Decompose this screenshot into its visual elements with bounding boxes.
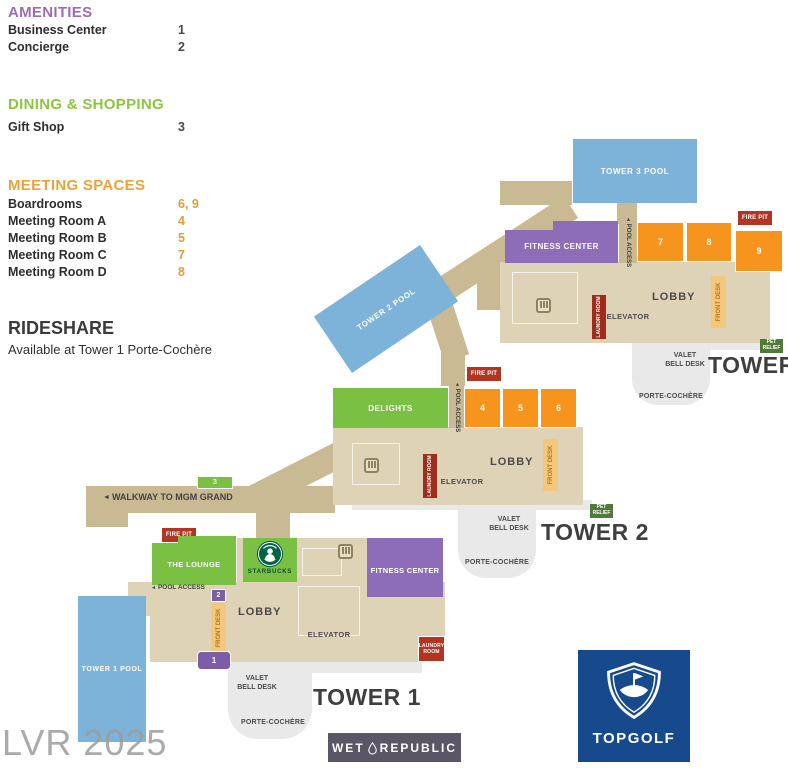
tower1-elevator-room-outline — [298, 586, 360, 636]
tower1-porte-cochere-label: PORTE-COCHÈRE — [241, 719, 303, 726]
walkway-label: ◄ WALKWAY TO MGM GRAND — [103, 492, 233, 502]
tower3-pool-access-label: ◄ POOL ACCESS — [625, 217, 631, 267]
tower3-valet-bell-desk: VALETBELL DESK — [655, 351, 715, 370]
legend-label: Business Center — [8, 23, 107, 37]
legend-item-concierge: Concierge 2 — [8, 40, 223, 54]
starbucks-label: STARBUCKS — [243, 569, 297, 575]
tower3-porte-cochere-label: PORTE-COCHÈRE — [636, 393, 706, 400]
tower1-business-center-marker: 1 — [197, 651, 231, 670]
legend-number: 4 — [178, 214, 185, 228]
tower3-meeting-room-7: 7 — [637, 222, 684, 262]
tower2-pool-access-label: ◄ POOL ACCESS — [454, 381, 460, 431]
legend-item-business-center: Business Center 1 — [8, 23, 223, 37]
wet-republic-logo: WET REPUBLIC — [328, 733, 461, 762]
legend-item-meeting-room-c: Meeting Room C 7 — [8, 248, 223, 262]
legend-item-meeting-room-b: Meeting Room B 5 — [8, 231, 223, 245]
tower3-lobby-label: LOBBY — [652, 291, 696, 303]
tower1-porte-cochere-drive — [228, 659, 312, 739]
tower2-valet-bell-desk: VALETBELL DESK — [479, 515, 539, 534]
legend-item-meeting-room-a: Meeting Room A 4 — [8, 214, 223, 228]
legend-number: 8 — [178, 265, 185, 279]
watermark: LVR 2025 — [2, 722, 167, 764]
walkway-tower3-top — [500, 181, 572, 205]
tower2-elevator-label: ELEVATOR — [438, 477, 486, 486]
tower3-pool-access-corridor: ◄ POOL ACCESS — [619, 221, 637, 263]
tower1-elevator-label: ELEVATOR — [296, 630, 362, 639]
tower1-the-lounge: THE LOUNGE — [152, 543, 236, 585]
legend-number: 2 — [178, 40, 185, 54]
legend-item-meeting-room-d: Meeting Room D 8 — [8, 265, 223, 279]
tower1-pool-access-label: ◄ POOL ACCESS — [151, 584, 205, 591]
topgolf-shield-icon — [601, 660, 667, 722]
legend-label: Boardrooms — [8, 197, 82, 211]
legend-item-boardrooms: Boardrooms 6, 9 — [8, 197, 223, 211]
walkway-tower1-stub — [256, 506, 290, 540]
tower3-fire-pit: FIRE PIT — [737, 210, 773, 226]
tower2-pool-label: TOWER 2 POOL — [355, 286, 417, 332]
amenities-heading: AMENITIES — [8, 4, 92, 21]
wet-republic-wet: WET — [332, 741, 365, 755]
legend-item-gift-shop: Gift Shop 3 — [8, 120, 223, 134]
water-drop-icon — [368, 741, 377, 755]
tower3-name: TOWER 3 — [708, 352, 788, 379]
rideshare-heading: RIDESHARE — [8, 318, 114, 339]
tower3-pool-label: TOWER 3 POOL — [601, 167, 669, 176]
tower3-meeting-room-8: 8 — [686, 222, 732, 262]
tower1-valet-bell-desk: VALETBELL DESK — [227, 674, 287, 693]
tower2-pool: TOWER 2 POOL — [314, 245, 458, 373]
gift-shop-marker: 3 — [197, 476, 233, 489]
tower2-porte-cochere-label: PORTE-COCHÈRE — [462, 559, 532, 566]
legend-label: Meeting Room D — [8, 265, 107, 279]
tower2-lobby-label: LOBBY — [490, 456, 534, 468]
tower2-name: TOWER 2 — [541, 519, 649, 546]
tower2-pet-relief: PETRELIEF — [590, 504, 613, 518]
rideshare-subtitle: Available at Tower 1 Porte-Cochère — [8, 342, 212, 357]
tower3-fitness-label: FITNESS CENTER — [505, 230, 618, 263]
left-arrow-icon: ◄ — [151, 585, 156, 591]
tower2-meeting-room-4: 4 — [464, 388, 501, 428]
tower2-front-desk: FRONT DESK — [543, 439, 558, 491]
legend-label: Meeting Room A — [8, 214, 106, 228]
tower3-pool: TOWER 3 POOL — [573, 139, 697, 203]
tower2-delights: DELIGHTS — [333, 388, 448, 428]
tower1-pool-label: TOWER 1 POOL — [82, 666, 143, 673]
tower2-meeting-room-6: 6 — [540, 388, 577, 428]
left-arrow-icon: ◄ — [103, 494, 110, 501]
tower3-elevator-icon — [536, 298, 551, 313]
legend-number: 7 — [178, 248, 185, 262]
legend-number: 3 — [178, 120, 185, 134]
tower1-concierge-marker: 2 — [211, 589, 226, 602]
tower3-meeting-room-9: 9 — [735, 230, 783, 272]
legend-label: Concierge — [8, 40, 69, 54]
dining-shopping-heading: DINING & SHOPPING — [8, 96, 164, 113]
tower1-fitness-label: FITNESS CENTER — [367, 566, 443, 575]
legend-label: Meeting Room C — [8, 248, 107, 262]
walkway-tower2-stub — [441, 348, 465, 386]
tower1-elevator-icon — [338, 544, 353, 559]
tower3-pet-relief: PETRELIEF — [760, 339, 783, 353]
topgolf-logo: TOPGOLF — [578, 650, 690, 762]
tower1-front-desk: FRONT DESK — [211, 603, 226, 653]
tower2-fire-pit: FIRE PIT — [466, 366, 502, 382]
tower1-lobby-label: LOBBY — [238, 606, 282, 618]
legend-label: Gift Shop — [8, 120, 64, 134]
resort-property-map: AMENITIES Business Center 1 Concierge 2 … — [0, 0, 788, 768]
tower3-elevator-label: ELEVATOR — [604, 312, 652, 321]
wet-republic-republic: REPUBLIC — [380, 741, 457, 755]
walkway-tower3-stub — [477, 262, 500, 310]
legend-number: 6, 9 — [178, 197, 199, 211]
up-arrow-icon: ◄ — [625, 217, 631, 222]
tower2-meeting-room-5: 5 — [502, 388, 539, 428]
starbucks-logo-icon — [256, 540, 284, 568]
tower2-porte-cochere-drive — [458, 500, 536, 578]
tower1-name: TOWER 1 — [313, 684, 421, 711]
topgolf-wordmark: TOPGOLF — [578, 730, 690, 747]
tower1-interior-outline-upper — [302, 548, 342, 576]
legend-number: 5 — [178, 231, 185, 245]
tower2-laundry-room: LAUNDRY ROOM — [423, 454, 437, 498]
legend-label: Meeting Room B — [8, 231, 107, 245]
tower3-front-desk: FRONT DESK — [711, 276, 726, 328]
legend-number: 1 — [178, 23, 185, 37]
tower1-pool: TOWER 1 POOL — [78, 596, 146, 742]
up-arrow-icon: ◄ — [454, 381, 460, 386]
tower1-laundry-room: LAUNDRYROOM — [418, 636, 445, 662]
tower2-elevator-icon — [364, 458, 379, 473]
meeting-spaces-heading: MEETING SPACES — [8, 177, 145, 194]
tower2-pool-access-corridor: ◄ POOL ACCESS — [449, 385, 464, 428]
tower1-starbucks: STARBUCKS — [243, 538, 297, 582]
